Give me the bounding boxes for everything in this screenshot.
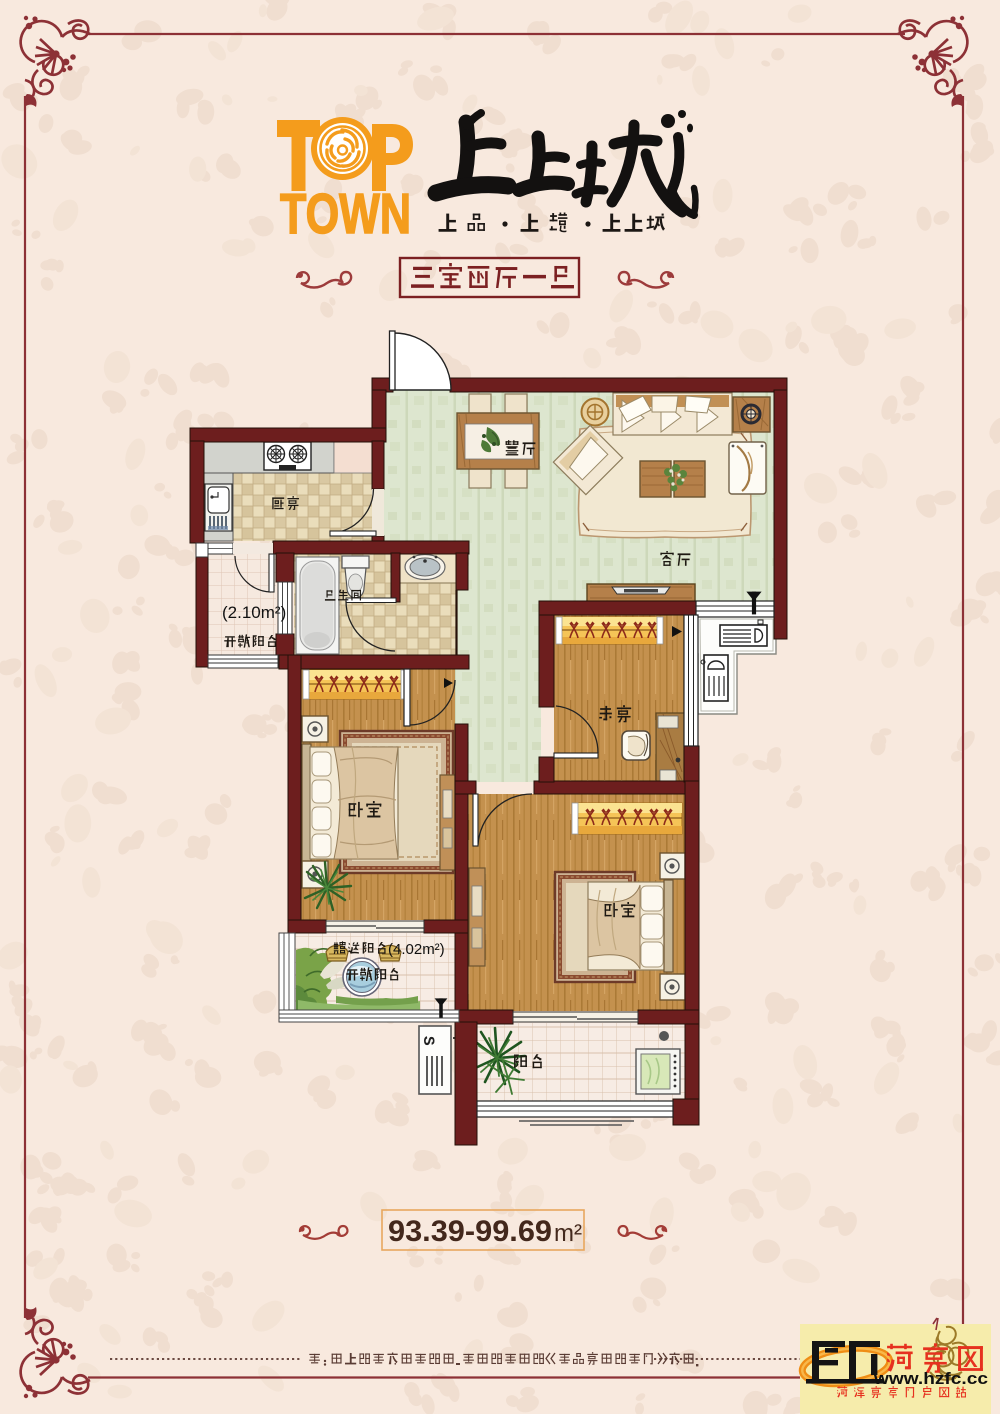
svg-text:www.hzfc.cc: www.hzfc.cc (873, 1369, 988, 1388)
svg-text:S: S (419, 1036, 437, 1046)
svg-text:m²: m² (554, 1220, 582, 1247)
svg-text:(2.10m²): (2.10m²) (222, 603, 286, 622)
svg-text:TOWN: TOWN (280, 182, 411, 246)
svg-text:93.39-99.69: 93.39-99.69 (388, 1215, 552, 1248)
svg-text:(4.02m²): (4.02m²) (388, 941, 445, 958)
